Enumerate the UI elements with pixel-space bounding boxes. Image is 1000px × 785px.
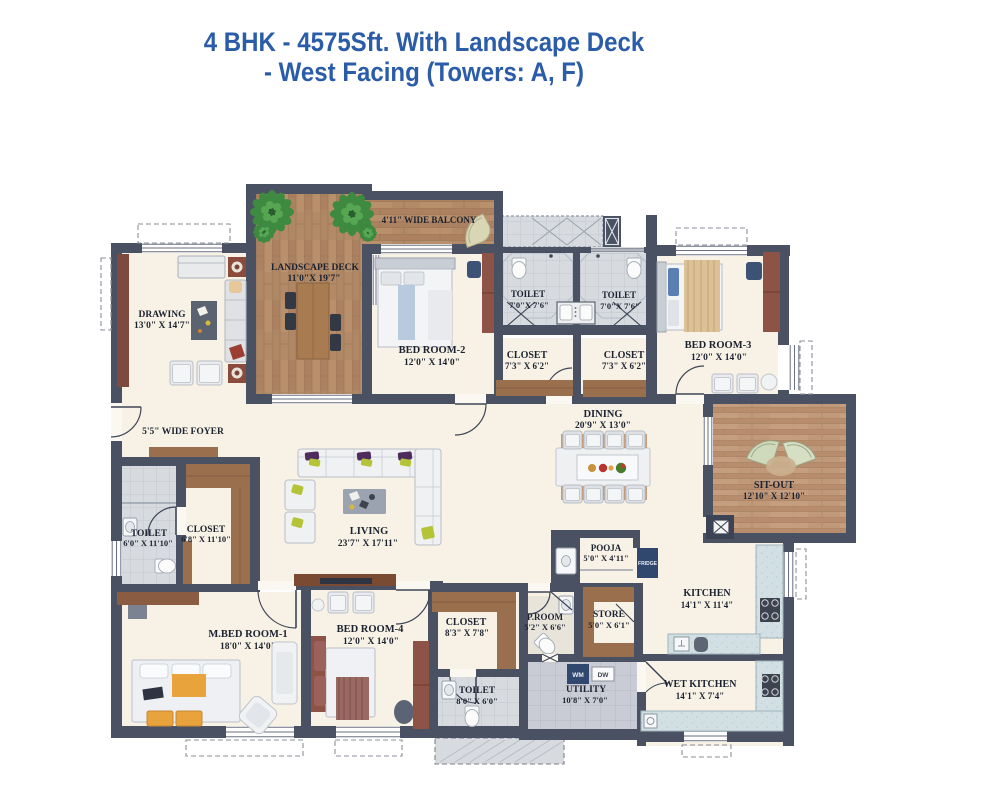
svg-text:10'8" X 7'0": 10'8" X 7'0" bbox=[562, 695, 608, 705]
svg-text:12'0" X 14'0": 12'0" X 14'0" bbox=[404, 358, 460, 368]
svg-text:20'9" X 13'0": 20'9" X 13'0" bbox=[575, 421, 631, 431]
svg-text:LANDSCAPE DECK: LANDSCAPE DECK bbox=[271, 263, 359, 273]
svg-text:5'0" X 6'1": 5'0" X 6'1" bbox=[588, 620, 630, 630]
svg-text:6'8" X 11'10": 6'8" X 11'10" bbox=[181, 534, 231, 544]
svg-text:6'0" X 11'10": 6'0" X 11'10" bbox=[123, 538, 173, 548]
svg-text:7'0"X 7'6": 7'0"X 7'6" bbox=[600, 301, 639, 311]
svg-text:7'3" X 6'2": 7'3" X 6'2" bbox=[505, 361, 549, 371]
svg-text:DINING: DINING bbox=[583, 409, 622, 420]
svg-text:8'3" X 7'8": 8'3" X 7'8" bbox=[445, 628, 489, 638]
svg-text:14'1" X 11'4": 14'1" X 11'4" bbox=[681, 600, 734, 610]
svg-text:UTILITY: UTILITY bbox=[566, 685, 606, 695]
svg-text:WET KITCHEN: WET KITCHEN bbox=[664, 679, 738, 690]
svg-text:STORE: STORE bbox=[593, 610, 625, 620]
svg-text:BED ROOM-4: BED ROOM-4 bbox=[337, 624, 405, 635]
svg-text:23'7" X 17'11": 23'7" X 17'11" bbox=[338, 539, 398, 549]
svg-text:5'5" WIDE FOYER: 5'5" WIDE FOYER bbox=[142, 427, 224, 437]
svg-text:TOILET: TOILET bbox=[602, 290, 636, 300]
svg-text:BED ROOM-2: BED ROOM-2 bbox=[399, 345, 466, 356]
svg-text:7'3" X 6'2": 7'3" X 6'2" bbox=[602, 361, 646, 371]
svg-text:5'2" X 6'6": 5'2" X 6'6" bbox=[524, 622, 566, 632]
svg-text:FRIDGE: FRIDGE bbox=[638, 561, 658, 567]
svg-text:DRAWING: DRAWING bbox=[139, 310, 187, 320]
svg-text:BED ROOM-3: BED ROOM-3 bbox=[685, 340, 752, 351]
svg-text:13'0" X 14'7": 13'0" X 14'7" bbox=[134, 321, 190, 331]
svg-text:TOILET: TOILET bbox=[511, 289, 545, 299]
svg-text:4'11" WIDE BALCONY: 4'11" WIDE BALCONY bbox=[382, 215, 477, 225]
svg-text:WM: WM bbox=[572, 672, 584, 679]
svg-text:LIVING: LIVING bbox=[350, 526, 389, 537]
svg-text:12'0" X 14'0": 12'0" X 14'0" bbox=[343, 637, 399, 647]
svg-text:TOILET: TOILET bbox=[459, 686, 496, 696]
svg-text:M.BED ROOM-1: M.BED ROOM-1 bbox=[208, 629, 287, 640]
svg-text:14'1" X 7'4": 14'1" X 7'4" bbox=[676, 691, 725, 701]
svg-text:7'0"X 7'6": 7'0"X 7'6" bbox=[509, 300, 548, 310]
svg-text:CLOSET: CLOSET bbox=[604, 350, 645, 361]
svg-text:POOJA: POOJA bbox=[591, 543, 622, 553]
svg-text:CLOSET: CLOSET bbox=[507, 350, 548, 361]
svg-text:P.ROOM: P.ROOM bbox=[527, 612, 563, 622]
svg-text:12'10" X 12'10": 12'10" X 12'10" bbox=[743, 491, 805, 501]
svg-text:DW: DW bbox=[598, 672, 610, 679]
svg-text:SIT-OUT: SIT-OUT bbox=[754, 480, 795, 491]
svg-text:CLOSET: CLOSET bbox=[446, 617, 487, 628]
svg-text:KITCHEN: KITCHEN bbox=[683, 588, 731, 599]
svg-text:8'0" X 6'0": 8'0" X 6'0" bbox=[456, 696, 498, 706]
svg-text:5'0" X 4'11": 5'0" X 4'11" bbox=[583, 553, 628, 563]
svg-text:18'0" X 14'0": 18'0" X 14'0" bbox=[220, 642, 276, 652]
svg-text:12'0" X 14'0": 12'0" X 14'0" bbox=[691, 353, 747, 363]
